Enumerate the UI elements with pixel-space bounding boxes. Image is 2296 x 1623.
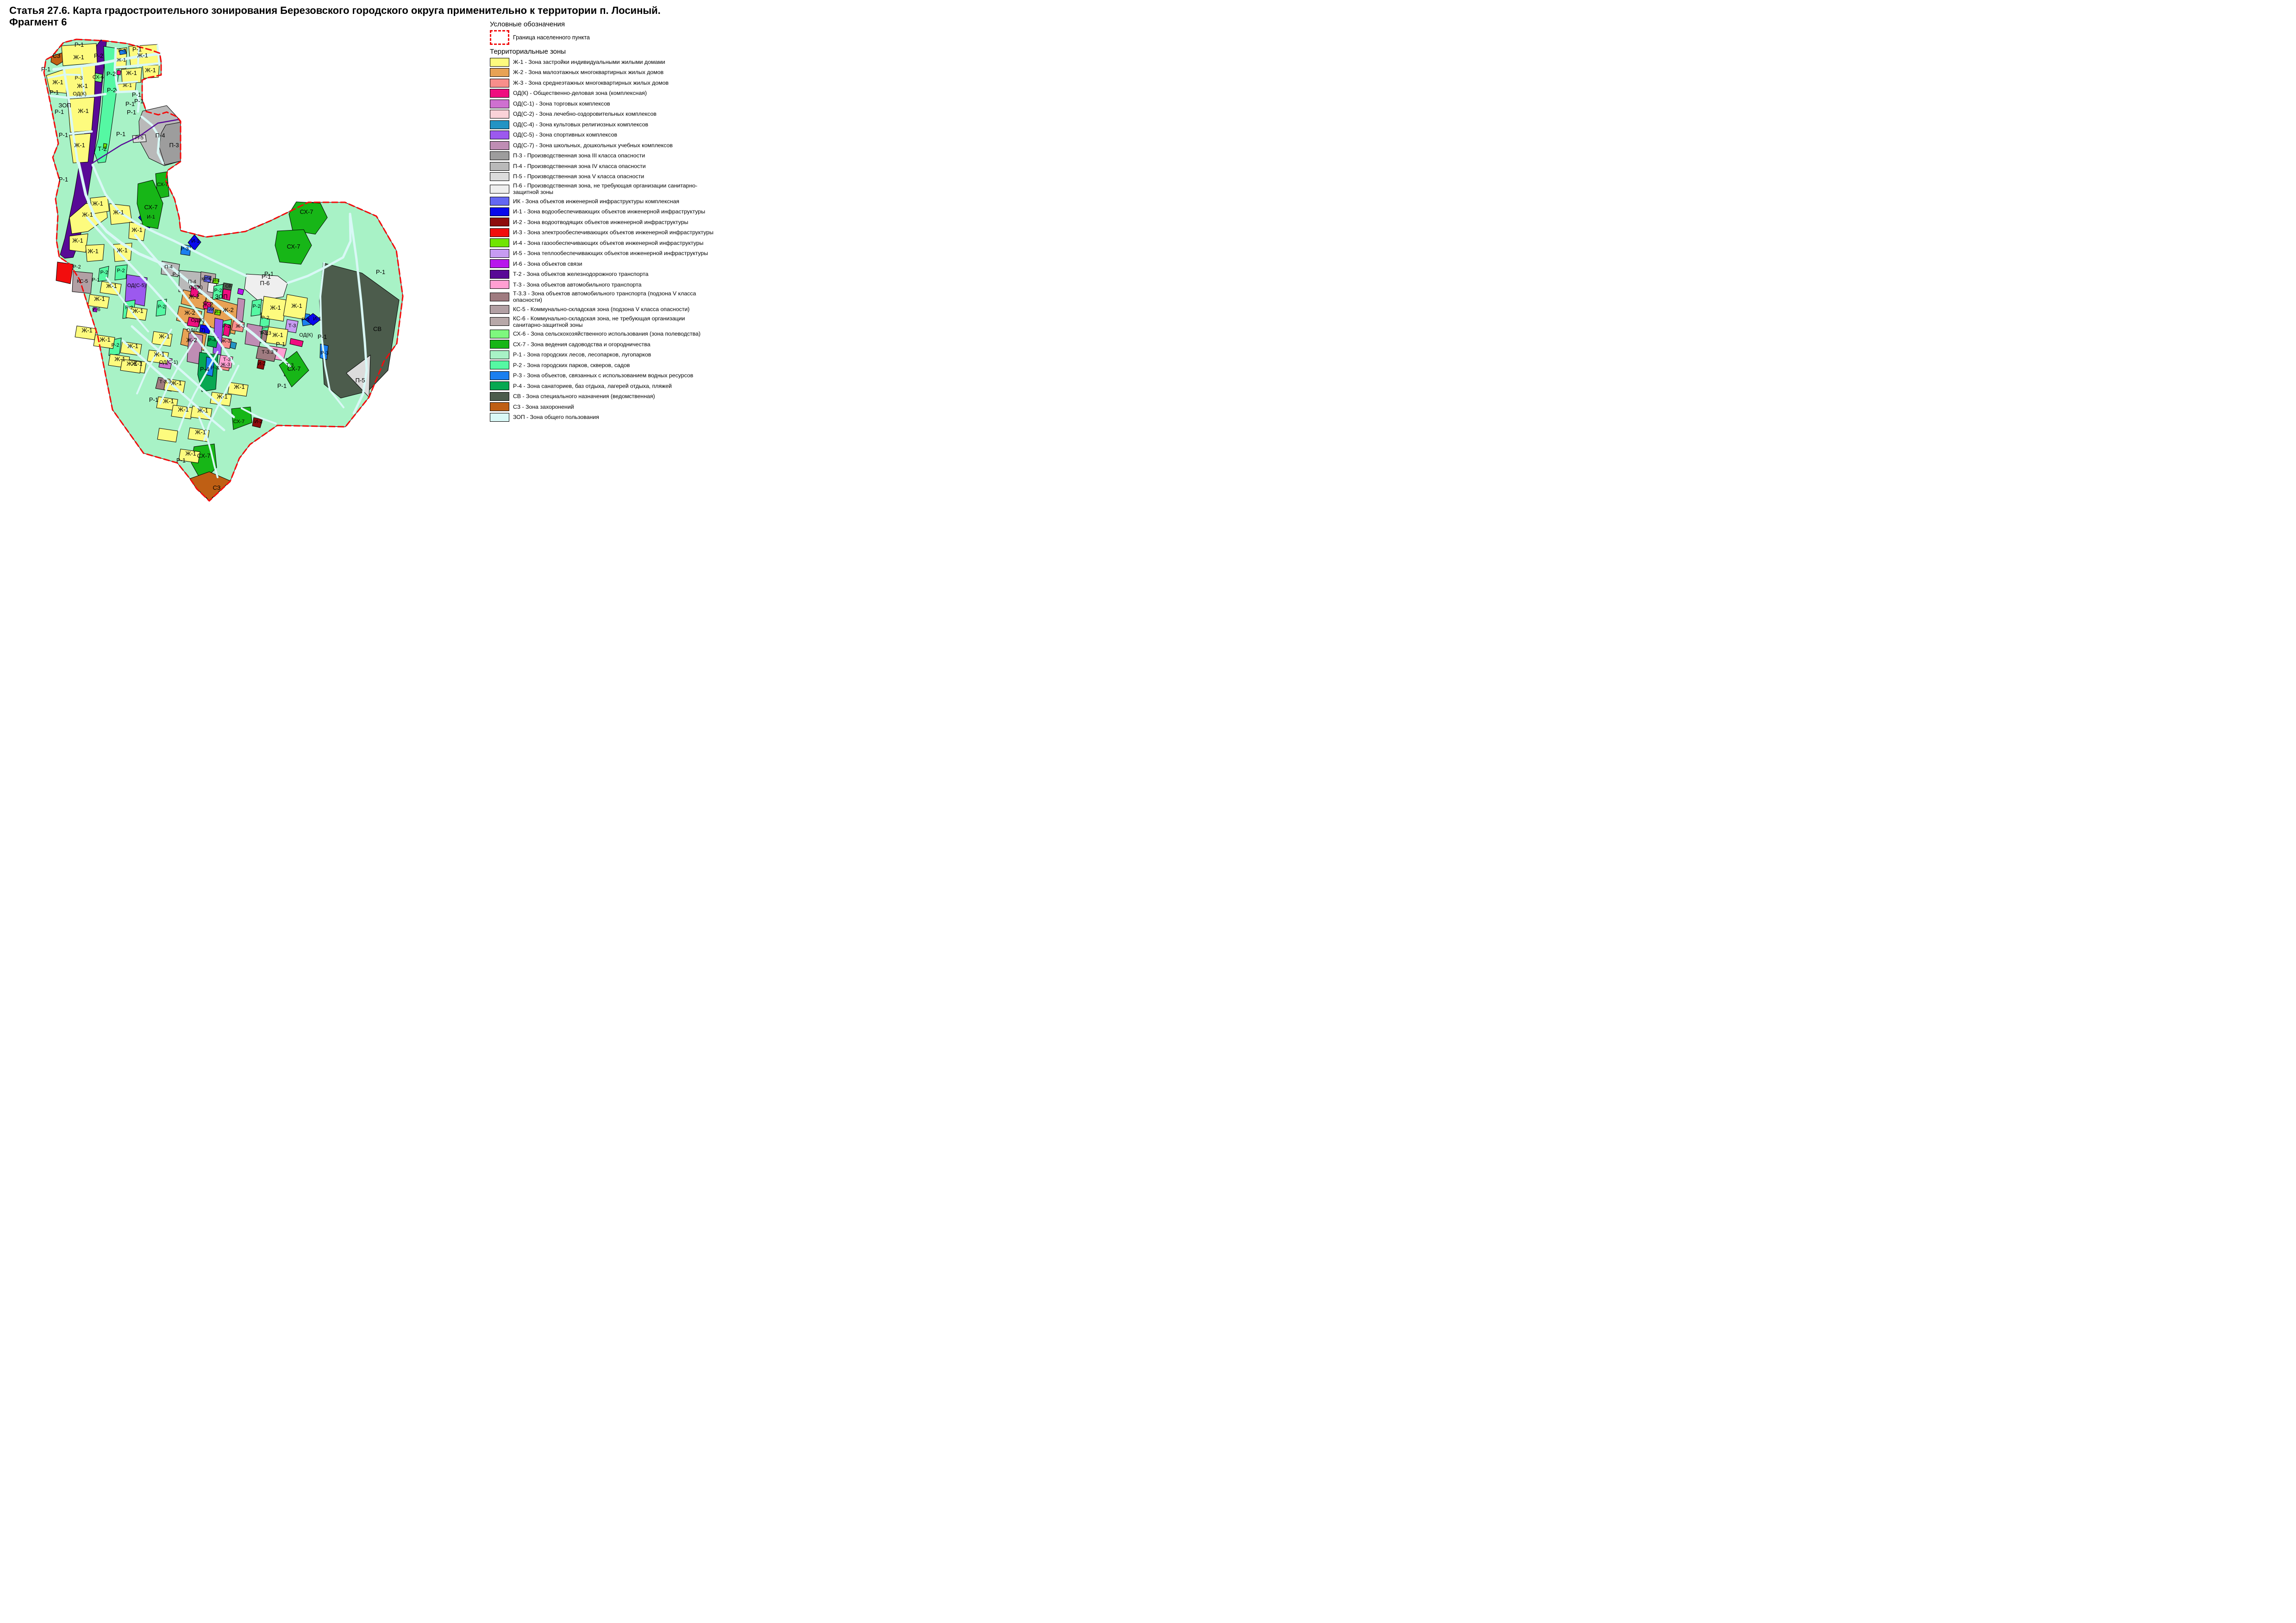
legend-row: ЗОП - Зона общего пользования [490, 412, 715, 422]
legend-row: Р-1 - Зона городских лесов, лесопарков, … [490, 350, 715, 359]
map-zone-label: ИК [205, 276, 211, 281]
zone-label: Р-4 - Зона санаториев, баз отдыха, лагер… [513, 383, 672, 389]
zone-label: ОД(С-4) - Зона культовых религиозных ком… [513, 121, 648, 128]
zone-label: П-3 - Производственная зона III класса о… [513, 152, 645, 159]
zone-label: ОД(С-5) - Зона спортивных комплексов [513, 131, 617, 138]
map-zone-label: Ж-1 [114, 356, 125, 362]
map-zone-label: Ж-1 [72, 237, 83, 244]
zone-swatch-icon [490, 79, 509, 87]
map-zone-label: Ж-3 [236, 324, 245, 329]
map-zone-label: Ж-1 [81, 327, 93, 334]
zone-swatch-icon [490, 259, 509, 268]
legend-row: КС-5 - Коммунально-складская зона (подзо… [490, 305, 715, 314]
map-zone-label: И-2 [254, 419, 263, 424]
legend-row: Р-3 - Зона объектов, связанных с использ… [490, 371, 715, 380]
map-zone-label: Ж-1 [272, 331, 283, 338]
legend-zones: Ж-1 - Зона застройки индивидуальными жил… [490, 57, 715, 423]
map-zone-label: Ж-1 [154, 351, 165, 358]
zone-label: И-5 - Зона теплообеспечивающих объектов … [513, 250, 708, 256]
legend-row: И-2 - Зона водоотводящих объектов инжене… [490, 218, 715, 227]
map-zone-label: Р-1 [125, 100, 135, 107]
legend-row: И-4 - Зона газообеспечивающих объектов и… [490, 238, 715, 248]
zone-label: Т-3.3 - Зона объектов автомобильного тра… [513, 290, 715, 303]
zone-label: И-1 - Зона водообеспечивающих объектов и… [513, 208, 705, 215]
map-zone-label: Ж-1 [185, 450, 196, 457]
map-zone-label: Ж-1 [132, 307, 144, 314]
map-zone-label: СЗ [213, 484, 220, 491]
map-zone-label: Ж-1 [137, 52, 148, 59]
map-zone-label: Ж-1 [92, 200, 103, 207]
zone-label: СВ - Зона специального назначения (ведом… [513, 393, 655, 400]
map-zone-label: ОД(С-1) [159, 360, 178, 365]
map-zone-label: Ж-1 [159, 333, 170, 340]
map-zone-label: Р-2 [106, 70, 116, 77]
legend-row: Р-4 - Зона санаториев, баз отдыха, лагер… [490, 381, 715, 391]
map-zone-label: КС-5 [77, 279, 88, 284]
map-zone-label: Ж-1 [197, 407, 208, 414]
map-zone-label: Р-1 [41, 66, 50, 73]
zone-swatch-icon [490, 110, 509, 119]
zoning-map: Р-1Р-1СЗЖ-1Ж-1Ж-1Р-3ОД(К)ЗОПР-1Ж-1Р-1Р-1… [0, 19, 491, 506]
map-zone-label: Р-2 [94, 52, 103, 59]
map-zone-label: Р-4 [200, 366, 209, 373]
zone-shape-ОД(К) [117, 70, 121, 75]
map-zone-label: ОД(К) [299, 332, 313, 338]
legend-row: ОД(С-4) - Зона культовых религиозных ком… [490, 120, 715, 129]
zone-swatch-icon [490, 371, 509, 380]
map-zone-label: П-4 [164, 264, 173, 270]
zone-swatch-icon [490, 305, 509, 314]
zone-swatch-icon [490, 120, 509, 129]
map-zone-label: П-6 [260, 280, 270, 287]
zone-swatch-icon [490, 58, 509, 67]
map-zone-label: Ж-1 [217, 393, 228, 400]
zone-swatch-icon [490, 293, 509, 301]
zone-label: ОД(С-1) - Зона торговых комплексов [513, 100, 610, 107]
map-zone-label: Р-2 [111, 343, 119, 348]
zone-swatch-icon [490, 141, 509, 150]
legend-boundary-item: Граница населенного пункта [490, 30, 715, 45]
boundary-label: Граница населенного пункта [513, 34, 590, 41]
zone-swatch-icon [490, 207, 509, 216]
map-zone-label: Р-1 [277, 382, 287, 389]
map-zone-label: СХ-7 [287, 243, 300, 250]
map-zone-label: Ж-1 [171, 380, 182, 387]
map-zone-label: И-4 [215, 310, 221, 314]
map-zone-label: Р-1 [132, 91, 141, 98]
map-zone-label: ОД(К) [191, 318, 205, 323]
map-zone-label: СЗ [52, 52, 60, 59]
map-zone-label: Р-2 [222, 324, 230, 329]
zone-swatch-icon [490, 413, 509, 422]
map-zone-label: П-4 [188, 279, 196, 285]
legend-row: ОД(С-5) - Зона спортивных комплексов [490, 131, 715, 140]
zone-swatch-icon [490, 249, 509, 258]
legend-row: КС-6 - Коммунально-складская зона, не тр… [490, 315, 715, 328]
map-zone-label: Р-3 [75, 75, 82, 81]
map-zone-label: Р-2 [100, 270, 108, 275]
zone-label: ЗОП - Зона общего пользования [513, 414, 599, 420]
map-zone-label: Ж-1 [117, 247, 128, 254]
zone-label: И-4 - Зона газообеспечивающих объектов и… [513, 240, 703, 246]
zone-label: Ж-1 - Зона застройки индивидуальными жил… [513, 59, 665, 65]
legend-row: И-1 - Зона водообеспечивающих объектов и… [490, 207, 715, 216]
map-zone-label: СХ-7 [197, 452, 211, 459]
zoning-map-page: Статья 27.6. Карта градостроительного зо… [0, 0, 716, 506]
map-zone-label: Р-2 [261, 315, 269, 321]
map-zone-label: СХ-7 [233, 419, 244, 424]
zone-swatch-icon [490, 185, 509, 194]
map-zone-label: Ж-1 [234, 383, 245, 390]
map-zone-label: Ж-1 [126, 69, 137, 76]
map-zone-label: Ж-1 [123, 83, 132, 88]
zone-shape-И-6 [238, 288, 244, 295]
map-zone-label: ОД(С-7) [187, 328, 206, 333]
map-zone-label: Ж-1 [82, 211, 93, 218]
map-zone-label: П-5 [135, 135, 144, 141]
zone-label: ОД(С-7) - Зона школьных, дошкольных учеб… [513, 142, 673, 149]
zone-swatch-icon [490, 172, 509, 181]
legend-row: Т-2 - Зона объектов железнодорожного тра… [490, 269, 715, 279]
legend-row: ОД(С-1) - Зона торговых комплексов [490, 99, 715, 108]
legend-row: Т-3 - Зона объектов автомобильного транс… [490, 280, 715, 289]
map-zone-label: СХ-7 [157, 182, 168, 187]
zone-swatch-icon [490, 100, 509, 108]
zone-label: И-3 - Зона электрообеспечивающих объекто… [513, 229, 713, 236]
map-zone-label: СХ-7 [300, 208, 313, 215]
map-zone-label: И-1 [313, 316, 321, 322]
zone-swatch-icon [490, 218, 509, 226]
map-zone-label: Р-1 [276, 341, 285, 348]
zone-swatch-icon [490, 68, 509, 77]
zone-label: СЗ - Зона захоронений [513, 404, 574, 410]
zone-swatch-icon [490, 197, 509, 206]
map-zone-label: Ж-1 [73, 54, 84, 61]
legend-row: П-5 - Производственная зона V класса опа… [490, 172, 715, 181]
map-zone-label: Р-1 [55, 108, 64, 115]
zone-swatch-icon [490, 340, 509, 349]
map-zone-label: И-6 [92, 307, 100, 312]
legend-row: Т-3.3 - Зона объектов автомобильного тра… [490, 290, 715, 303]
map-zone-label: Р-1 [376, 268, 385, 275]
map-zone-label: Р-4 [208, 337, 216, 343]
map-zone-label: Р-2 [157, 304, 165, 310]
map-zone-label: Ж-1 [178, 406, 189, 413]
map-zone-label: Ж-2 [223, 306, 234, 313]
map-zone-label: Р-1 [132, 46, 142, 53]
map-zone-label: Р-2 [252, 304, 260, 309]
map-zone-label: Ж-1 [78, 107, 89, 114]
zone-label: КС-5 - Коммунально-складская зона (подзо… [513, 306, 689, 312]
zone-label: Т-2 - Зона объектов железнодорожного тра… [513, 271, 648, 277]
map-zone-label: Ж-1 [195, 429, 206, 436]
map-zone-label: Р-2 [73, 264, 81, 270]
legend-row: П-6 - Производственная зона, не требующа… [490, 182, 715, 195]
legend-row: Ж-3 - Зона среднеэтажных многоквартирных… [490, 78, 715, 87]
map-zone-label: Р-3 [211, 365, 219, 371]
map-zone-label: Р-3 [320, 350, 328, 356]
legend-row: СХ-6 - Зона сельскохозяйственного исполь… [490, 329, 715, 338]
boundary-swatch-icon [490, 30, 509, 45]
legend-row: СХ-7 - Зона ведения садоводства и огород… [490, 340, 715, 349]
map-container: Р-1Р-1СЗЖ-1Ж-1Ж-1Р-3ОД(К)ЗОПР-1Ж-1Р-1Р-1… [0, 19, 491, 506]
zone-label: И-2 - Зона водоотводящих объектов инжене… [513, 219, 688, 225]
zone-swatch-icon [490, 162, 509, 171]
zone-label: П-4 - Производственная зона IV класса оп… [513, 163, 646, 169]
legend-row: П-3 - Производственная зона III класса о… [490, 151, 715, 161]
zone-label: КС-6 - Коммунально-складская зона, не тр… [513, 315, 715, 328]
map-zone-label: ЗОП [215, 293, 227, 300]
zone-label: Р-2 - Зона городских парков, скверов, са… [513, 362, 630, 368]
map-zone-label: Ж-1 [291, 302, 302, 309]
map-zone-label: Р-1 [59, 176, 68, 183]
map-zone-label: Р-1 [75, 41, 84, 48]
legend-row: Ж-2 - Зона малоэтажных многоквартирных ж… [490, 68, 715, 77]
map-zone-label: Ж-1 [117, 57, 126, 63]
map-zone-label: Ж-1 [88, 248, 99, 255]
map-zone-label: Ж-1 [74, 142, 85, 149]
legend-zones-header: Территориальные зоны [490, 48, 715, 56]
map-zone-label: Р-1 [92, 277, 100, 283]
map-zone-label: И-1 [147, 214, 155, 220]
map-zone-label: Р-3 [301, 317, 309, 323]
map-zone-label: СХ-6 [93, 75, 104, 80]
map-zone-label: Т-3.3 [159, 379, 171, 385]
map-zone-label: ОД(К) [189, 285, 203, 290]
map-zone-label: Ж-1 [94, 295, 105, 302]
map-zone-label: Р-2 [125, 305, 133, 311]
map-zone-label: И-4 [213, 278, 219, 283]
zone-label: СХ-6 - Зона сельскохозяйственного исполь… [513, 331, 701, 337]
map-zone-label: Ж-1 [145, 67, 156, 74]
map-zone-label: Ж-1 [131, 360, 143, 367]
zone-shape-ОД(С-4) [230, 342, 237, 349]
map-zone-label: Р-2 [107, 87, 116, 94]
map-zone-label: СХ-7 [288, 365, 301, 372]
map-zone-label: Р-1 [149, 396, 158, 403]
zone-label: ОД(С-2) - Зона лечебно-оздоровительных к… [513, 111, 657, 117]
map-zone-label: Ж-1 [131, 226, 143, 233]
zone-swatch-icon [490, 317, 509, 326]
map-zone-label: Р-1 [172, 272, 180, 277]
zone-swatch-icon [490, 361, 509, 369]
map-zone-label: ОД(К) [73, 91, 87, 97]
map-zone-label: Ж-1 [106, 282, 117, 289]
legend-row: ОД(С-2) - Зона лечебно-оздоровительных к… [490, 110, 715, 119]
zone-label: СХ-7 - Зона ведения садоводства и огород… [513, 341, 651, 348]
zone-label: П-5 - Производственная зона V класса опа… [513, 173, 644, 180]
legend: Условные обозначения Граница населенного… [490, 20, 715, 423]
map-zone-label: Р-2 [117, 268, 125, 274]
map-zone-label: Т-3 [288, 323, 296, 329]
zone-swatch-icon [490, 228, 509, 237]
legend-row: СЗ - Зона захоронений [490, 402, 715, 412]
map-zone-label: Ж-1 [113, 209, 124, 216]
map-zone-label: Р-1 [127, 109, 136, 116]
legend-row: И-6 - Зона объектов связи [490, 259, 715, 268]
map-zone-label: Р-1 [176, 457, 186, 464]
map-zone-label: Ж-1 [270, 304, 281, 311]
map-zone-label: Ж-1 [127, 343, 138, 350]
map-zone-label: Ж-2 [202, 301, 213, 308]
map-zone-label: Ж-2 [184, 309, 195, 316]
legend-row: ОД(К) - Общественно-деловая зона (компле… [490, 89, 715, 98]
zone-label: Ж-2 - Зона малоэтажных многоквартирных ж… [513, 69, 663, 75]
zone-label: ИК - Зона объектов инженерной инфраструк… [513, 198, 679, 205]
zone-label: Р-3 - Зона объектов, связанных с использ… [513, 372, 693, 379]
map-zone-label: Ж-1 [77, 82, 88, 89]
legend-row: ИК - Зона объектов инженерной инфраструк… [490, 197, 715, 206]
zone-label: Т-3 - Зона объектов автомобильного транс… [513, 281, 641, 288]
map-zone-label: Р-3 [118, 48, 126, 54]
map-zone-label: Т-3.3 [259, 331, 271, 336]
map-zone-label: Р-2 [214, 288, 222, 293]
legend-row: И-5 - Зона теплообеспечивающих объектов … [490, 249, 715, 258]
map-shapes-layer [44, 39, 403, 501]
map-zone-label: Р-1 [134, 98, 144, 105]
map-zone-label: Ж-3 [221, 338, 231, 344]
zone-label: Р-1 - Зона городских лесов, лесопарков, … [513, 351, 651, 358]
zone-swatch-icon [490, 280, 509, 289]
zone-swatch-icon [490, 402, 509, 411]
map-zone-label: Т-3 [223, 357, 231, 362]
map-zone-label: Ж-1 [100, 336, 111, 343]
map-zone-label: П-3 [169, 142, 179, 149]
zone-swatch-icon [490, 330, 509, 338]
map-zone-label: ЗОП [58, 102, 71, 109]
map-zone-label: Ж-3 [221, 362, 230, 368]
map-zone-label: СХ-7 [144, 204, 158, 211]
zone-swatch-icon [490, 350, 509, 359]
map-zone-label: П-5 [356, 377, 365, 384]
map-zone-label: Р-1 [59, 131, 68, 138]
legend-row: И-3 - Зона электрообеспечивающих объекто… [490, 228, 715, 237]
zone-swatch-icon [490, 89, 509, 98]
zone-swatch-icon [490, 131, 509, 139]
map-zone-label: Ж-1 [52, 79, 63, 86]
zone-swatch-icon [490, 392, 509, 401]
legend-row: Р-2 - Зона городских парков, скверов, са… [490, 361, 715, 370]
map-zone-label: Ж-2 [186, 337, 197, 343]
map-zone-label: Р-1 [116, 131, 125, 137]
legend-row: Ж-1 - Зона застройки индивидуальными жил… [490, 57, 715, 67]
map-zone-label: Ж-2 [188, 293, 200, 300]
map-zone-label: СВ [373, 325, 382, 332]
zone-label: Ж-3 - Зона среднеэтажных многоквартирных… [513, 80, 669, 86]
map-zone-label: Т-2 [98, 145, 107, 152]
legend-row: СВ - Зона специального назначения (ведом… [490, 392, 715, 401]
map-zone-label: Р-1 [262, 273, 271, 280]
map-zone-label: Р-1 [318, 333, 327, 340]
map-zone-label: П-4 [156, 132, 165, 139]
map-zone-label: СВ [225, 284, 231, 288]
map-zone-label: Т-3.3 [262, 350, 274, 355]
legend-row: ОД(С-7) - Зона школьных, дошкольных учеб… [490, 141, 715, 150]
zone-swatch-icon [490, 381, 509, 390]
zone-label: П-6 - Производственная зона, не требующа… [513, 182, 715, 195]
legend-header: Условные обозначения [490, 20, 715, 28]
zone-label: ОД(К) - Общественно-деловая зона (компле… [513, 90, 647, 96]
zone-label: И-6 - Зона объектов связи [513, 261, 582, 267]
zone-swatch-icon [490, 151, 509, 160]
map-zone-label: Ж-1 [163, 398, 174, 405]
legend-row: П-4 - Производственная зона IV класса оп… [490, 162, 715, 171]
map-zone-label: И-2 [257, 361, 266, 367]
map-zone-label: И-1 [191, 238, 200, 244]
map-zone-label: ОД(С-5) [127, 283, 146, 288]
map-zone-label: Р-3 [181, 246, 188, 252]
map-zone-label: ИК [208, 307, 214, 312]
zone-swatch-icon [490, 238, 509, 247]
zone-swatch-icon [490, 270, 509, 279]
map-zone-label: Р-1 [50, 89, 59, 96]
